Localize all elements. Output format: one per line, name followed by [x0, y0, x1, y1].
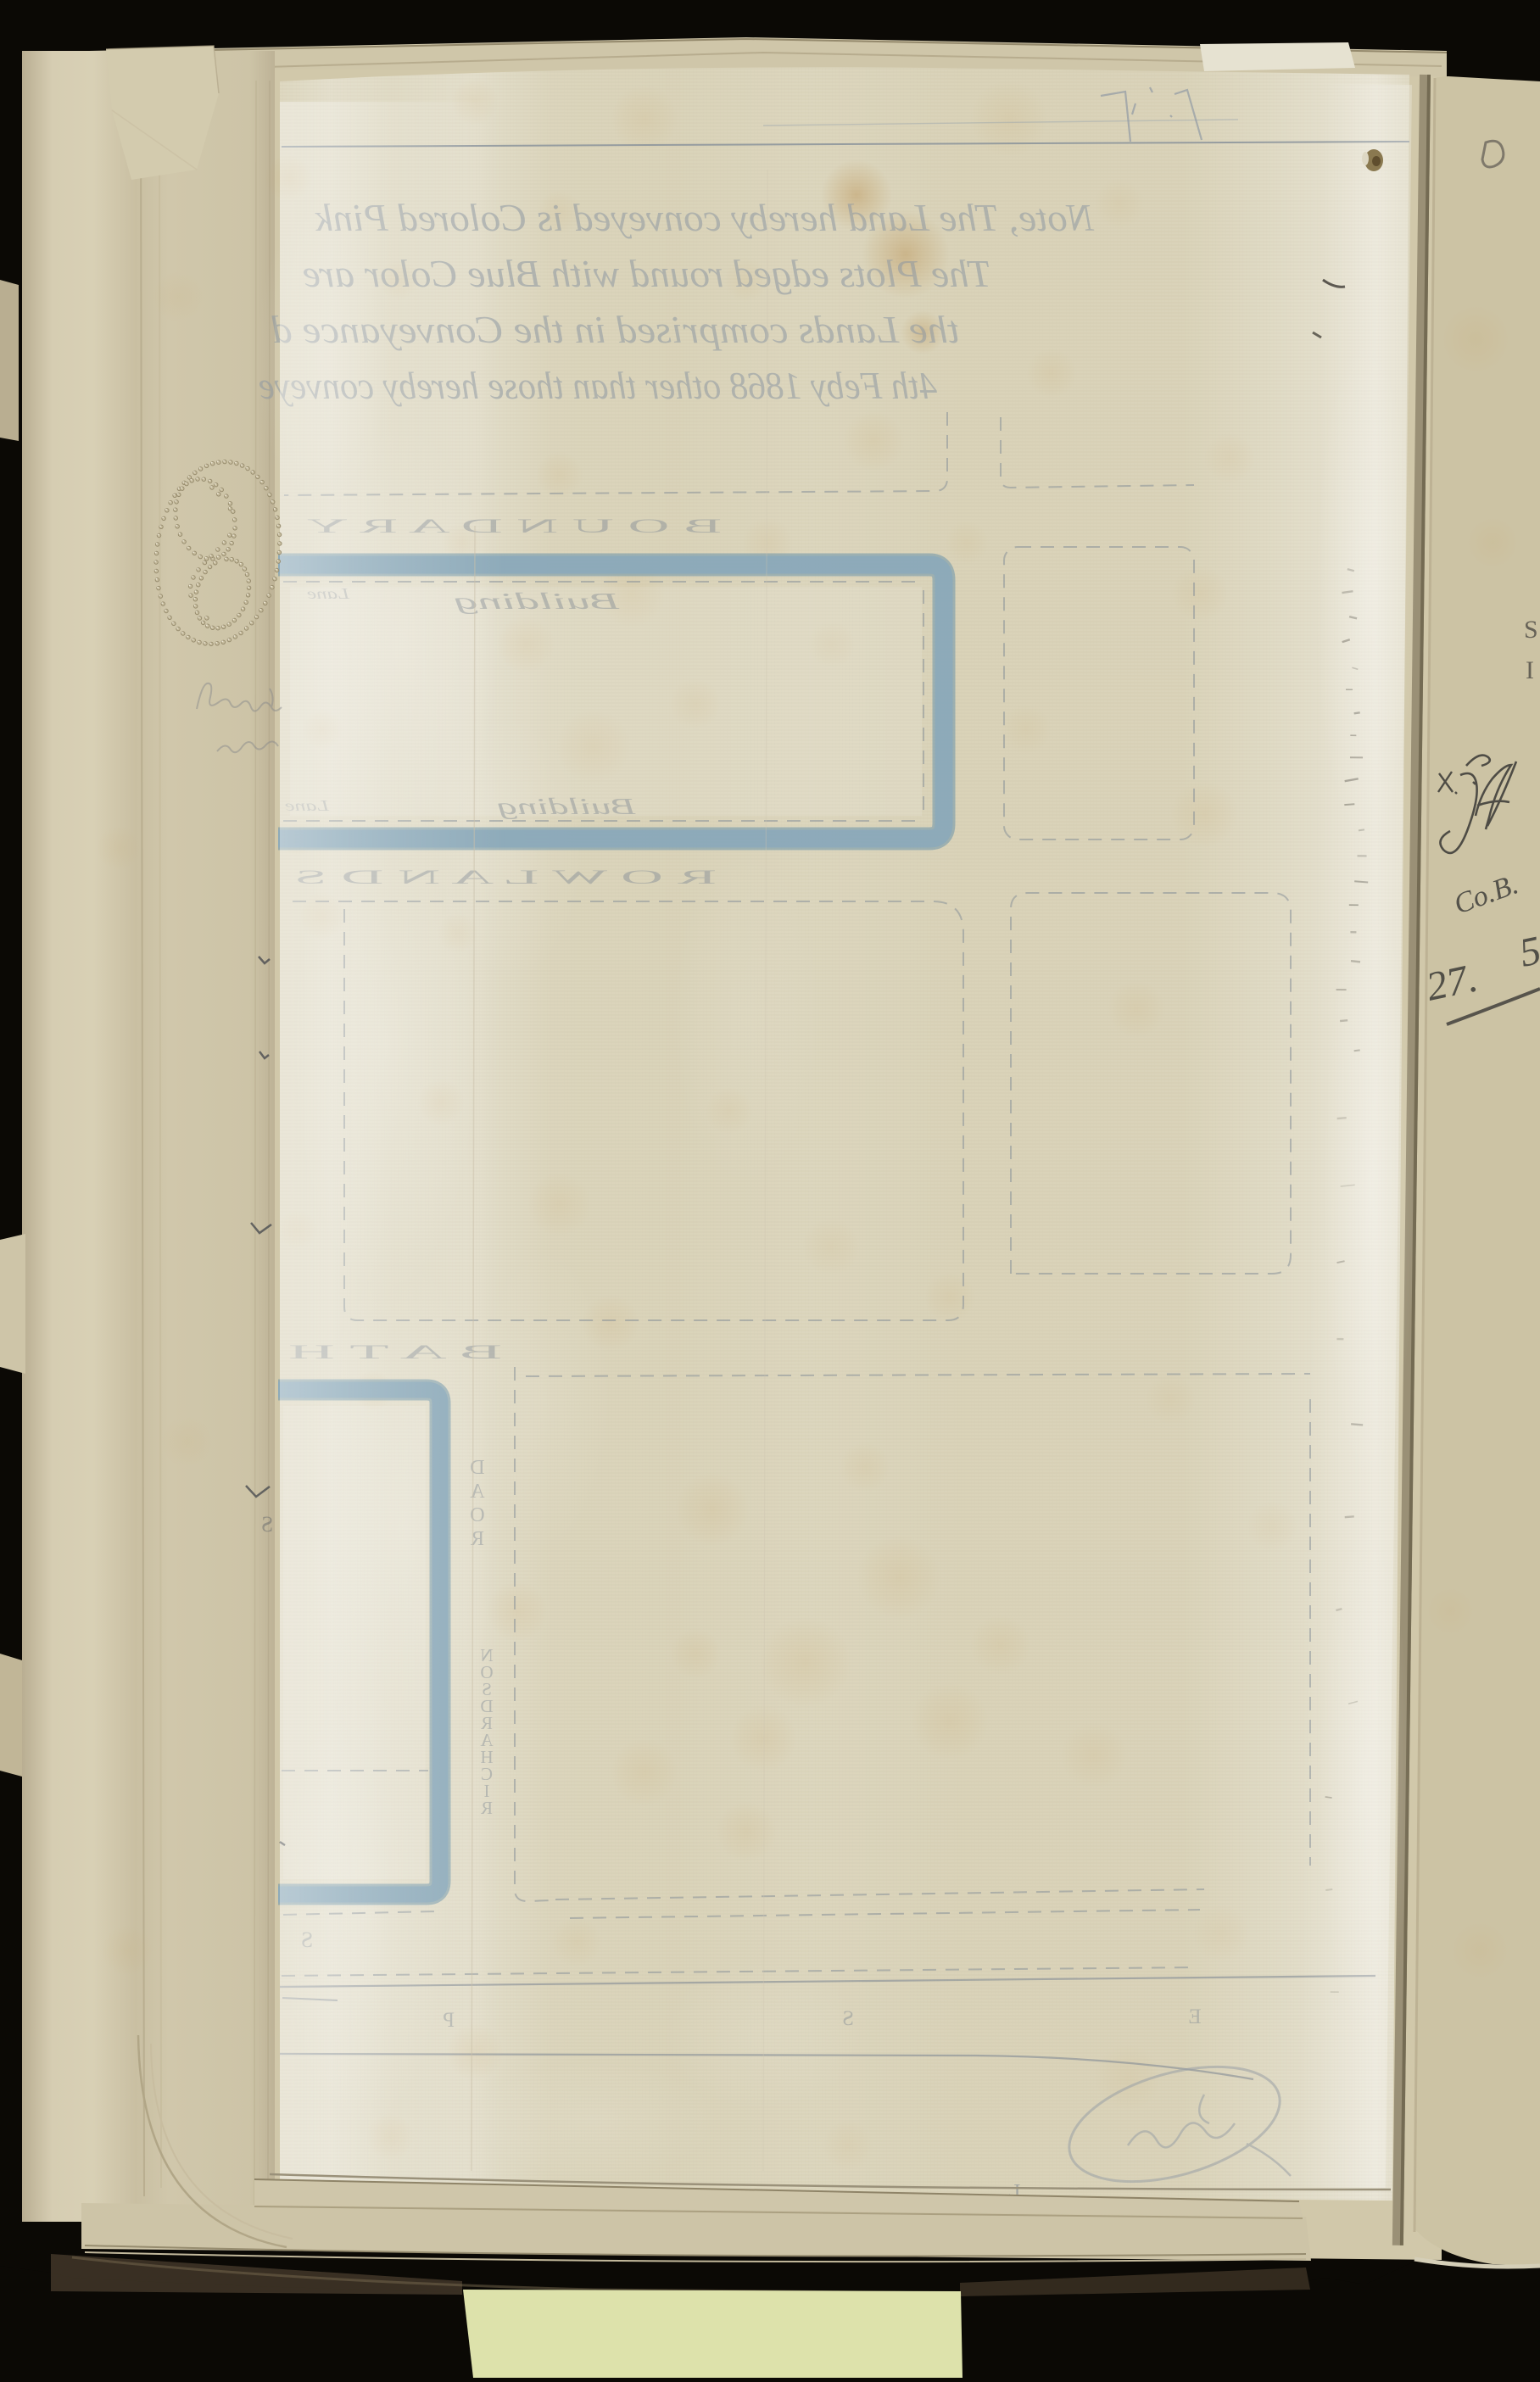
svg-text:I: I: [1526, 656, 1534, 684]
svg-text:E: E: [1188, 2005, 1201, 2028]
svg-text:S: S: [261, 1512, 273, 1537]
svg-text:S: S: [1524, 616, 1538, 644]
svg-text:S: S: [842, 2007, 854, 2030]
svg-text:Building: Building: [497, 794, 636, 819]
